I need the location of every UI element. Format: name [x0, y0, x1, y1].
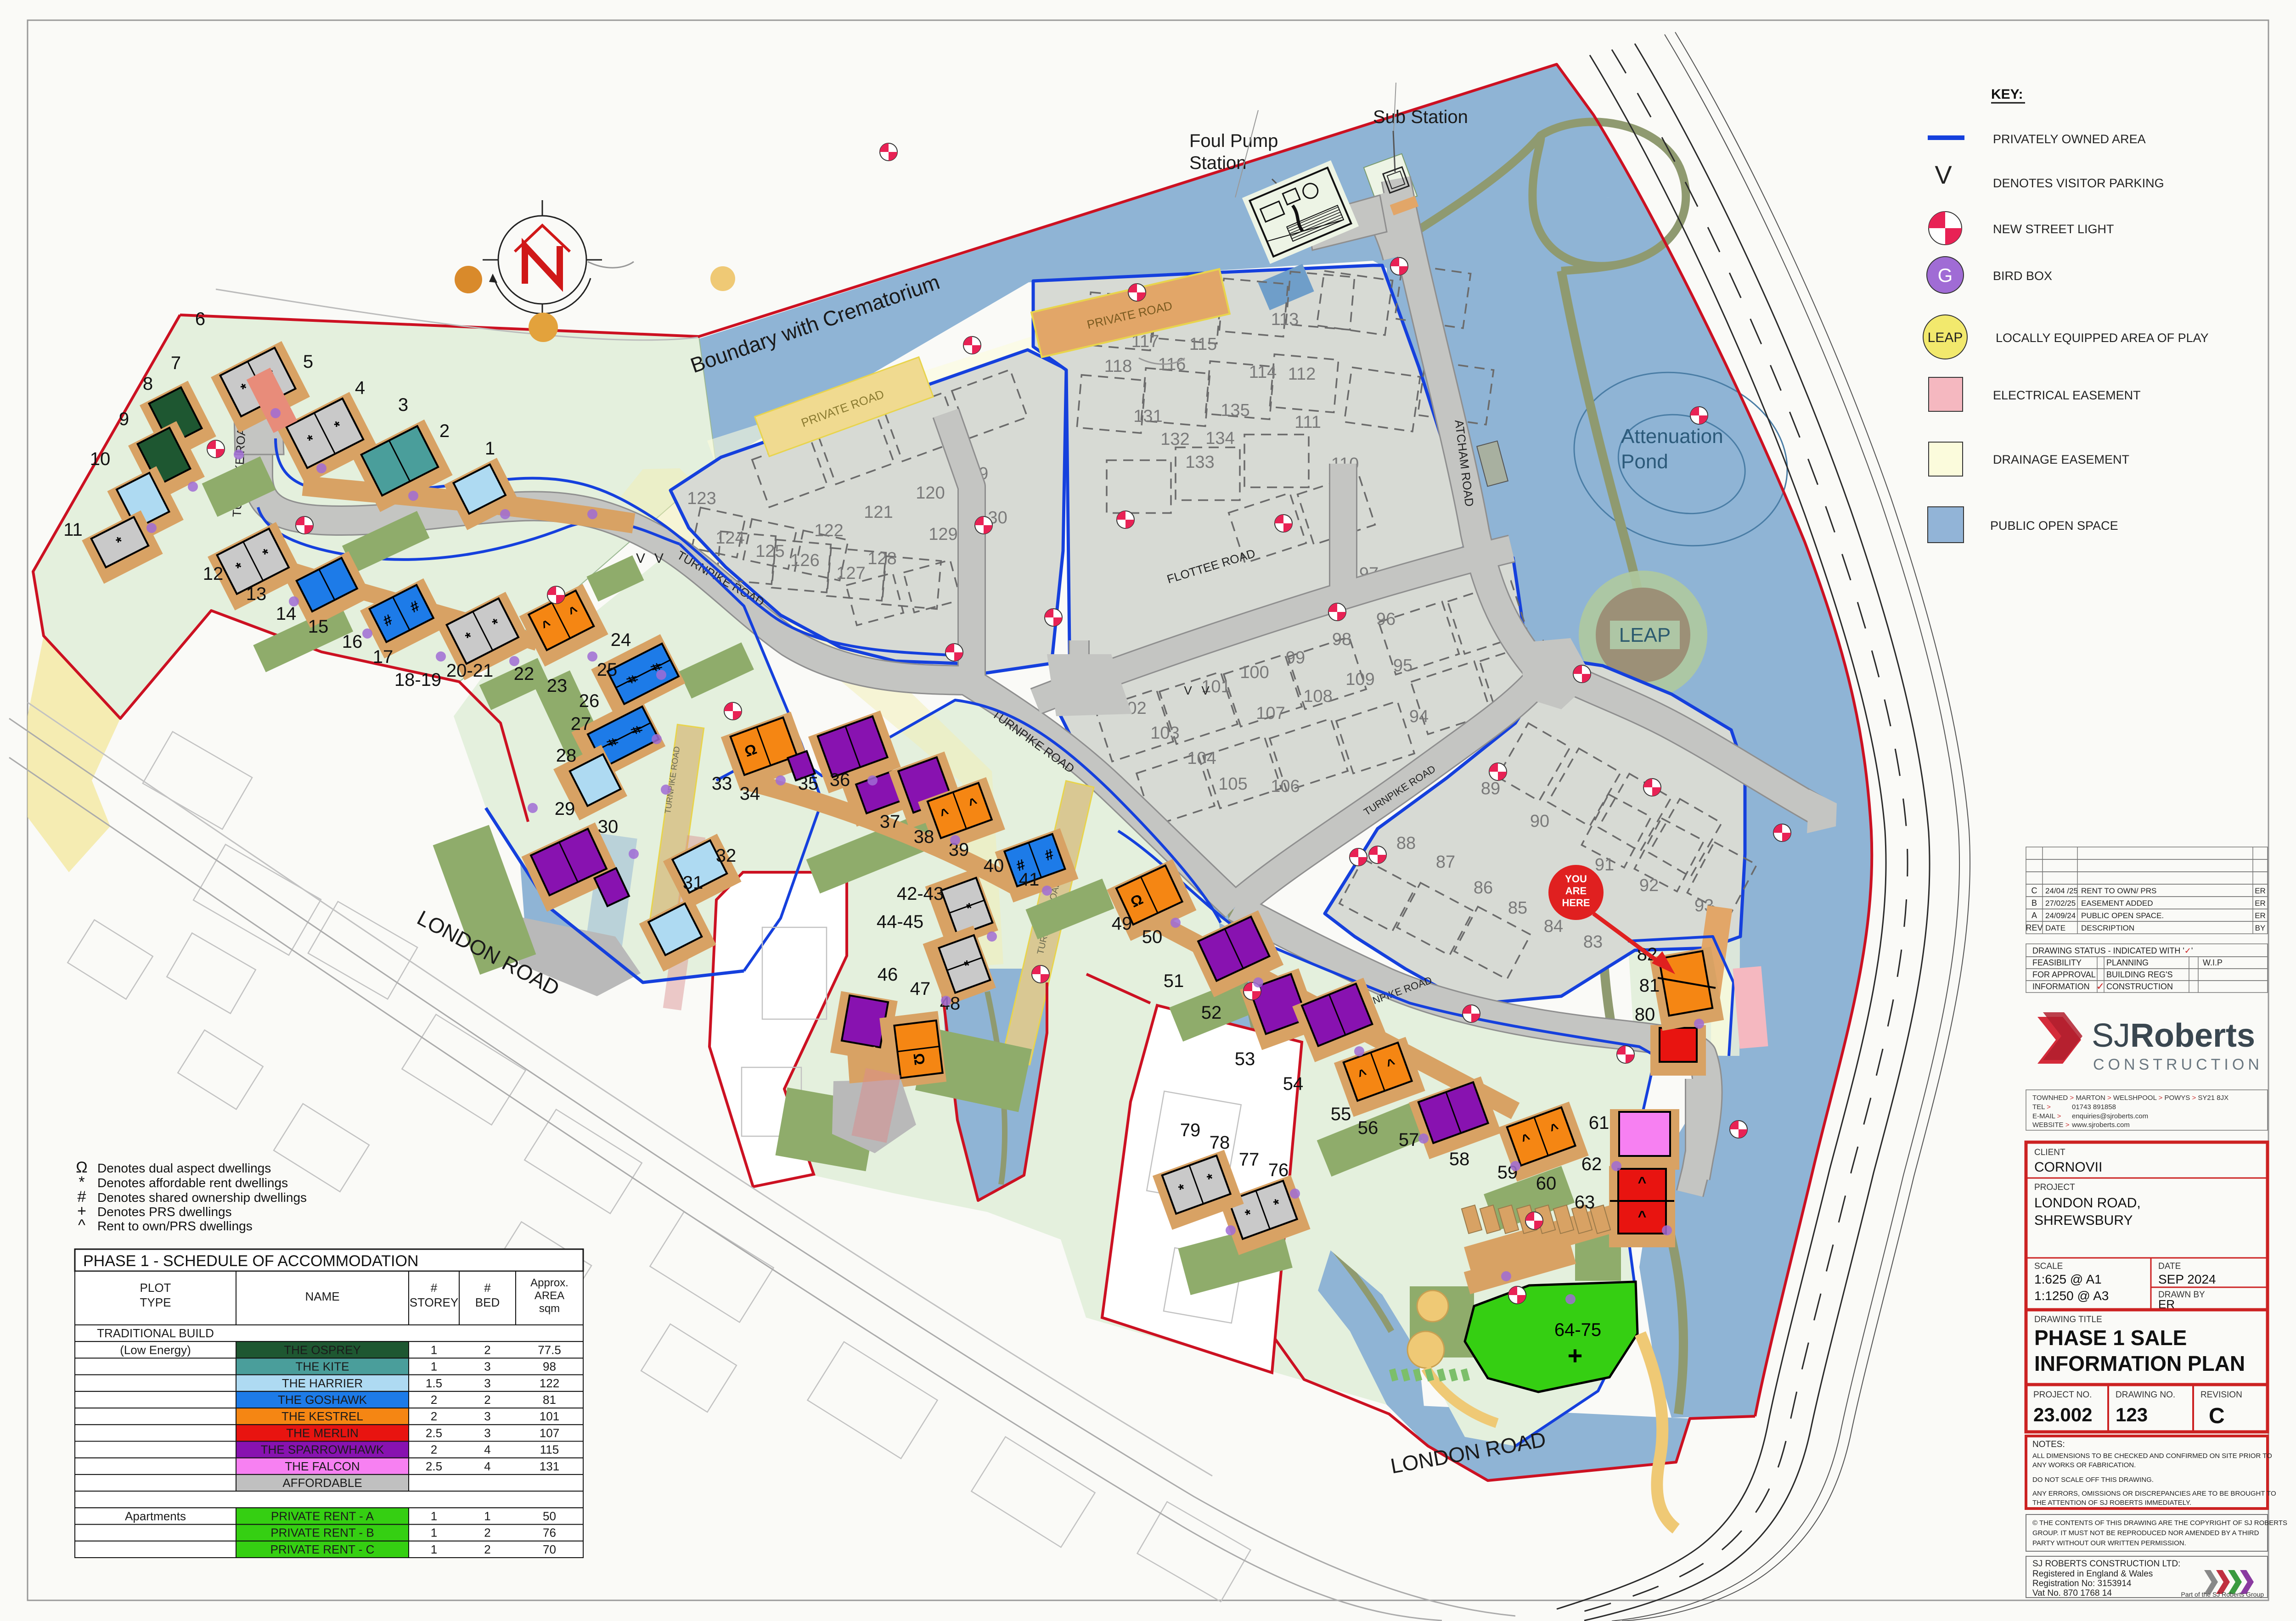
- svg-text:1: 1: [431, 1360, 437, 1374]
- svg-text:3: 3: [484, 1426, 490, 1440]
- svg-text:Registration No: 3153914: Registration No: 3153914: [2032, 1579, 2132, 1588]
- svg-text:107: 107: [1256, 704, 1285, 723]
- svg-text:1: 1: [485, 438, 495, 459]
- svg-text:108: 108: [1303, 687, 1332, 706]
- svg-text:125: 125: [755, 542, 784, 561]
- svg-text:49: 49: [1112, 914, 1132, 934]
- svg-text:Attenuation: Attenuation: [1621, 425, 1723, 448]
- svg-text:DRAWING STATUS - INDICATED WIT: DRAWING STATUS - INDICATED WITH '✓': [2032, 946, 2193, 955]
- svg-text:CLIENT: CLIENT: [2034, 1148, 2065, 1157]
- svg-text:V: V: [1935, 160, 1952, 189]
- svg-text:12: 12: [203, 564, 224, 584]
- svg-text:Rent to own/PRS dwellings: Rent to own/PRS dwellings: [97, 1219, 253, 1233]
- svg-text:THE ATTENTION OF SJ ROBERTS IM: THE ATTENTION OF SJ ROBERTS IMMEDIATELY.: [2032, 1499, 2191, 1507]
- svg-text:KEY:: KEY:: [1991, 87, 2023, 102]
- svg-text:27: 27: [571, 714, 591, 734]
- svg-text:3: 3: [398, 395, 408, 415]
- svg-text:129: 129: [929, 525, 957, 544]
- svg-text:B: B: [2032, 898, 2037, 908]
- svg-text:7: 7: [171, 353, 181, 373]
- svg-text:1: 1: [431, 1526, 437, 1540]
- svg-text:53: 53: [1235, 1049, 1255, 1069]
- svg-text:2: 2: [431, 1443, 437, 1457]
- svg-text:2.5: 2.5: [426, 1459, 442, 1473]
- svg-text:37: 37: [880, 812, 900, 832]
- svg-text:115: 115: [1189, 335, 1217, 354]
- svg-text:98: 98: [543, 1360, 556, 1374]
- svg-text:^: ^: [1638, 1208, 1647, 1224]
- svg-text:C: C: [2209, 1404, 2225, 1428]
- svg-text:95: 95: [1393, 656, 1412, 675]
- svg-text:INFORMATION PLAN: INFORMATION PLAN: [2034, 1352, 2245, 1375]
- svg-text:ARE: ARE: [1565, 885, 1587, 897]
- svg-text:104: 104: [1187, 749, 1216, 768]
- svg-text:91: 91: [1595, 855, 1614, 875]
- svg-text:4: 4: [484, 1443, 490, 1457]
- svg-text:96: 96: [1376, 610, 1396, 629]
- svg-text:LOCALLY EQUIPPED AREA OF PLAY: LOCALLY EQUIPPED AREA OF PLAY: [1996, 331, 2209, 345]
- svg-text:Denotes affordable rent dwelli: Denotes affordable rent dwellings: [97, 1176, 288, 1190]
- svg-text:76: 76: [543, 1526, 556, 1540]
- svg-text:FOR APPROVAL: FOR APPROVAL: [2032, 970, 2096, 979]
- svg-text:1: 1: [431, 1542, 437, 1556]
- svg-text:enquiries@sjroberts.com: enquiries@sjroberts.com: [2072, 1112, 2148, 1120]
- svg-text:83: 83: [1583, 932, 1603, 952]
- svg-text:47: 47: [910, 979, 931, 999]
- svg-text:54: 54: [1283, 1074, 1304, 1094]
- svg-text:2: 2: [431, 1409, 437, 1423]
- svg-text:DRAWING TITLE: DRAWING TITLE: [2034, 1315, 2102, 1324]
- svg-text:ANY WORKS OR FABRICATION.: ANY WORKS OR FABRICATION.: [2032, 1461, 2136, 1469]
- svg-text:4: 4: [355, 378, 365, 398]
- svg-text:90: 90: [1530, 812, 1549, 831]
- svg-text:11: 11: [63, 520, 83, 540]
- svg-text:46: 46: [878, 965, 898, 985]
- svg-text:01743 891858: 01743 891858: [2072, 1103, 2116, 1111]
- svg-text:23.002: 23.002: [2033, 1404, 2092, 1425]
- svg-text:BY: BY: [2255, 924, 2266, 932]
- svg-text:115: 115: [540, 1443, 559, 1457]
- svg-text:5: 5: [303, 352, 313, 372]
- svg-text:REVISION: REVISION: [2200, 1390, 2242, 1400]
- svg-text:DO NOT SCALE OFF THIS DRAWING.: DO NOT SCALE OFF THIS DRAWING.: [2032, 1476, 2154, 1484]
- svg-text:Denotes dual aspect dwellings: Denotes dual aspect dwellings: [97, 1161, 271, 1175]
- svg-text:CONSTRUCTION: CONSTRUCTION: [2093, 1056, 2263, 1073]
- svg-text:34: 34: [740, 784, 760, 804]
- svg-text:81: 81: [1639, 976, 1660, 996]
- svg-text:123: 123: [687, 489, 716, 508]
- svg-text:30: 30: [598, 817, 619, 837]
- svg-text:SJRoberts: SJRoberts: [2092, 1017, 2255, 1054]
- svg-text:132: 132: [1160, 430, 1189, 449]
- svg-text:112: 112: [1288, 365, 1316, 384]
- svg-text:SCALE: SCALE: [2034, 1262, 2063, 1271]
- svg-text:NOTES:: NOTES:: [2032, 1440, 2065, 1449]
- svg-text:100: 100: [1240, 663, 1269, 682]
- svg-text:ER: ER: [2255, 899, 2266, 908]
- svg-text:28: 28: [556, 746, 577, 766]
- svg-text:ER: ER: [2255, 886, 2266, 895]
- svg-text:PLANNING: PLANNING: [2106, 958, 2149, 967]
- svg-text:V: V: [636, 551, 645, 566]
- svg-text:92: 92: [1639, 876, 1659, 895]
- svg-text:9: 9: [119, 409, 129, 429]
- svg-text:ANY ERRORS, OMISSIONS OR DISCR: ANY ERRORS, OMISSIONS OR DISCREPANCIES A…: [2032, 1490, 2276, 1498]
- svg-text:98: 98: [1332, 630, 1351, 649]
- svg-text:Part of the SJ Roberts Group: Part of the SJ Roberts Group: [2181, 1591, 2264, 1598]
- svg-text:SHREWSBURY: SHREWSBURY: [2034, 1213, 2133, 1228]
- svg-text:133: 133: [1185, 453, 1214, 472]
- svg-text:TYPE: TYPE: [140, 1296, 171, 1309]
- svg-text:22: 22: [514, 664, 535, 684]
- svg-text:94: 94: [1409, 707, 1429, 726]
- svg-text:109: 109: [1345, 670, 1374, 689]
- svg-text:50: 50: [1142, 927, 1163, 947]
- svg-text:CONSTRUCTION: CONSTRUCTION: [2106, 982, 2173, 991]
- svg-text:127: 127: [836, 564, 865, 583]
- svg-text:LEAP: LEAP: [1928, 330, 1963, 345]
- svg-text:NEW STREET LIGHT: NEW STREET LIGHT: [1993, 222, 2114, 236]
- svg-text:24: 24: [611, 630, 631, 650]
- svg-text:20-21: 20-21: [446, 661, 493, 681]
- svg-text:FEASIBILITY: FEASIBILITY: [2032, 958, 2082, 967]
- svg-text:Apartments: Apartments: [125, 1509, 186, 1523]
- svg-text:AFFORDABLE: AFFORDABLE: [282, 1476, 362, 1490]
- svg-text:V: V: [1201, 684, 1210, 697]
- svg-text:SEP 2024: SEP 2024: [2158, 1272, 2216, 1286]
- svg-text:79: 79: [1180, 1120, 1201, 1140]
- svg-text:122: 122: [540, 1376, 559, 1390]
- svg-text:77.5: 77.5: [538, 1343, 561, 1357]
- svg-text:44-45: 44-45: [877, 912, 923, 932]
- svg-text:TRADITIONAL BUILD: TRADITIONAL BUILD: [97, 1326, 214, 1340]
- svg-text:A: A: [2032, 911, 2037, 920]
- svg-text:113: 113: [1271, 310, 1299, 329]
- svg-text:131: 131: [540, 1459, 559, 1473]
- svg-text:52: 52: [1201, 1003, 1222, 1023]
- svg-text:105: 105: [1218, 774, 1247, 794]
- svg-text:RENT TO OWN/ PRS: RENT TO OWN/ PRS: [2081, 886, 2156, 895]
- svg-text:15: 15: [308, 617, 329, 637]
- svg-text:62: 62: [1581, 1154, 1602, 1174]
- svg-text:THE SPARROWHAWK: THE SPARROWHAWK: [261, 1443, 384, 1457]
- svg-text:85: 85: [1508, 898, 1527, 918]
- svg-text:120: 120: [916, 483, 945, 503]
- svg-text:1: 1: [431, 1509, 437, 1523]
- svg-text:87: 87: [1436, 853, 1455, 872]
- svg-text:1: 1: [431, 1343, 437, 1357]
- svg-text:77: 77: [1239, 1150, 1260, 1170]
- svg-text:BIRD BOX: BIRD BOX: [1993, 269, 2052, 283]
- svg-text:(Low Energy): (Low Energy): [120, 1343, 191, 1357]
- svg-text:42-43: 42-43: [897, 884, 944, 904]
- svg-text:3: 3: [484, 1360, 490, 1374]
- svg-text:18-19: 18-19: [394, 670, 441, 690]
- svg-text:PHASE 1 - SCHEDULE OF ACCOMMOD: PHASE 1 - SCHEDULE OF ACCOMMODATION: [83, 1252, 418, 1270]
- svg-text:60: 60: [1536, 1173, 1557, 1194]
- svg-text:BUILDING REG'S: BUILDING REG'S: [2106, 970, 2172, 979]
- svg-text:32: 32: [716, 846, 737, 866]
- svg-text:13: 13: [246, 584, 267, 604]
- svg-text:CORNOVII: CORNOVII: [2034, 1160, 2102, 1175]
- svg-text:1:625 @ A1: 1:625 @ A1: [2034, 1272, 2102, 1286]
- svg-text:www.sjroberts.com: www.sjroberts.com: [2071, 1121, 2130, 1129]
- svg-text:PROJECT: PROJECT: [2034, 1183, 2075, 1192]
- svg-text:31: 31: [683, 873, 703, 893]
- svg-text:131: 131: [1133, 407, 1162, 426]
- svg-text:LONDON ROAD,: LONDON ROAD,: [2034, 1195, 2141, 1211]
- svg-text:51: 51: [1164, 971, 1184, 991]
- svg-text:78: 78: [1210, 1133, 1230, 1153]
- svg-text:14: 14: [276, 604, 297, 624]
- svg-text:#: #: [484, 1281, 491, 1295]
- svg-text:PRIVATE RENT - B: PRIVATE RENT - B: [270, 1526, 374, 1540]
- svg-text:#: #: [431, 1281, 438, 1295]
- svg-text:24/04 /25: 24/04 /25: [2045, 886, 2078, 895]
- svg-text:ALL DIMENSIONS TO BE CHECKED A: ALL DIMENSIONS TO BE CHECKED AND CONFIRM…: [2032, 1452, 2272, 1460]
- svg-text:118: 118: [1104, 357, 1132, 376]
- svg-text:64-75: 64-75: [1554, 1320, 1601, 1340]
- svg-text:111: 111: [1294, 413, 1321, 432]
- svg-text:TEL >: TEL >: [2032, 1103, 2051, 1111]
- svg-text:6: 6: [195, 309, 205, 329]
- svg-text:PLOT: PLOT: [140, 1281, 171, 1295]
- svg-text:1: 1: [484, 1509, 490, 1523]
- svg-text:Approx.: Approx.: [530, 1277, 568, 1289]
- svg-text:E-MAIL >: E-MAIL >: [2032, 1112, 2061, 1120]
- svg-text:76: 76: [1268, 1160, 1289, 1180]
- svg-text:2: 2: [439, 421, 450, 441]
- svg-text:DRAINAGE EASEMENT: DRAINAGE EASEMENT: [1993, 453, 2129, 466]
- svg-text:35: 35: [798, 774, 819, 794]
- svg-text:2: 2: [484, 1542, 490, 1556]
- svg-text:17: 17: [373, 647, 394, 667]
- svg-text:121: 121: [864, 503, 893, 522]
- svg-text:ER: ER: [2255, 911, 2266, 920]
- svg-text:88: 88: [1396, 834, 1416, 853]
- svg-text:23: 23: [547, 676, 568, 696]
- svg-text:99: 99: [1286, 648, 1305, 667]
- svg-text:36: 36: [830, 770, 850, 790]
- svg-text:103: 103: [1150, 724, 1179, 743]
- svg-text:ELECTRICAL EASEMENT: ELECTRICAL EASEMENT: [1993, 388, 2141, 402]
- svg-text:THE OSPREY: THE OSPREY: [284, 1343, 361, 1357]
- svg-text:2.5: 2.5: [426, 1426, 442, 1440]
- svg-text:PROJECT NO.: PROJECT NO.: [2033, 1390, 2092, 1400]
- svg-text:Pond: Pond: [1621, 450, 1668, 473]
- svg-text:38: 38: [914, 827, 934, 847]
- svg-text:AREA: AREA: [535, 1290, 564, 1302]
- svg-text:Denotes PRS dwellings: Denotes PRS dwellings: [97, 1205, 232, 1219]
- svg-text:1.5: 1.5: [426, 1376, 442, 1390]
- svg-text:PARTY WITHOUT OUR WRITTEN PERM: PARTY WITHOUT OUR WRITTEN PERMISSION.: [2032, 1539, 2186, 1547]
- svg-text:Ω: Ω: [910, 1052, 928, 1066]
- svg-text:YOU: YOU: [1565, 873, 1587, 885]
- svg-text:V: V: [1184, 684, 1192, 697]
- svg-text:EASEMENT ADDED: EASEMENT ADDED: [2081, 899, 2153, 908]
- svg-text:86: 86: [1474, 878, 1493, 897]
- svg-text:107: 107: [540, 1426, 559, 1440]
- svg-text:2: 2: [484, 1526, 490, 1540]
- svg-text:8: 8: [143, 374, 153, 394]
- svg-text:THE GOSHAWK: THE GOSHAWK: [278, 1393, 367, 1407]
- svg-text:135: 135: [1221, 401, 1249, 420]
- svg-text:55: 55: [1331, 1104, 1351, 1124]
- svg-text:REV: REV: [2026, 923, 2043, 932]
- svg-text:DRAWING NO.: DRAWING NO.: [2116, 1390, 2175, 1400]
- svg-text:STOREY: STOREY: [410, 1296, 458, 1309]
- svg-text:W.I.P: W.I.P: [2203, 958, 2223, 967]
- svg-text:123: 123: [2116, 1404, 2148, 1425]
- svg-text:HERE: HERE: [1562, 897, 1590, 909]
- svg-text:3: 3: [484, 1409, 490, 1423]
- svg-text:3: 3: [484, 1376, 490, 1390]
- svg-text:DENOTES VISITOR PARKING: DENOTES VISITOR PARKING: [1993, 176, 2164, 190]
- svg-text:41: 41: [1019, 869, 1040, 890]
- svg-text:✓: ✓: [2096, 981, 2105, 992]
- svg-text:INFORMATION: INFORMATION: [2032, 982, 2090, 991]
- svg-text:Denotes shared ownership dwell: Denotes shared ownership dwellings: [97, 1190, 307, 1205]
- svg-text:80: 80: [1635, 1004, 1655, 1025]
- svg-text:G: G: [1938, 264, 1953, 286]
- svg-text:THE KESTREL: THE KESTREL: [281, 1409, 363, 1423]
- svg-text:29: 29: [555, 799, 575, 819]
- svg-text:GROUP. IT MUST NOT BE REPRODUC: GROUP. IT MUST NOT BE REPRODUCED NOR AME…: [2032, 1529, 2259, 1537]
- svg-text:Vat No. 870 1768 14: Vat No. 870 1768 14: [2032, 1588, 2112, 1598]
- svg-text:© THE CONTENTS OF THIS DRAWING: © THE CONTENTS OF THIS DRAWING ARE THE C…: [2032, 1519, 2287, 1527]
- svg-text:26: 26: [579, 691, 600, 711]
- svg-text:63: 63: [1575, 1192, 1595, 1212]
- svg-text:PRIVATELY OWNED AREA: PRIVATELY OWNED AREA: [1993, 132, 2146, 146]
- svg-text:Foul Pump: Foul Pump: [1189, 131, 1278, 151]
- svg-text:122: 122: [814, 521, 843, 540]
- svg-text:106: 106: [1271, 777, 1300, 796]
- svg-text:58: 58: [1449, 1149, 1470, 1169]
- svg-text:WEBSITE >: WEBSITE >: [2032, 1121, 2070, 1129]
- svg-text:THE FALCON: THE FALCON: [285, 1459, 360, 1473]
- svg-text:Sub Station: Sub Station: [1373, 107, 1468, 127]
- svg-text:84: 84: [1544, 917, 1563, 936]
- svg-text:16: 16: [342, 632, 363, 652]
- svg-text:25: 25: [597, 660, 618, 680]
- svg-text:Station: Station: [1189, 153, 1247, 173]
- svg-text:TOWNHED > MARTON > WELSHPOOL >: TOWNHED > MARTON > WELSHPOOL > POWYS > S…: [2032, 1094, 2228, 1102]
- svg-text:10: 10: [90, 449, 111, 469]
- svg-text:27/02/25: 27/02/25: [2045, 899, 2076, 908]
- svg-text:24/09/24: 24/09/24: [2045, 911, 2076, 920]
- svg-text:DATE: DATE: [2158, 1262, 2181, 1271]
- svg-text:LEAP: LEAP: [1619, 624, 1671, 646]
- svg-text:PUBLIC OPEN SPACE: PUBLIC OPEN SPACE: [1990, 519, 2118, 533]
- svg-text:Registered in England & Wales: Registered in England & Wales: [2032, 1569, 2153, 1579]
- svg-text:BED: BED: [475, 1296, 500, 1309]
- svg-text:89: 89: [1481, 779, 1500, 798]
- svg-text:2: 2: [484, 1393, 490, 1407]
- svg-text:THE MERLIN: THE MERLIN: [286, 1426, 358, 1440]
- svg-text:61: 61: [1589, 1113, 1609, 1133]
- svg-text:56: 56: [1358, 1118, 1379, 1138]
- svg-text:124: 124: [715, 528, 744, 548]
- svg-text:^: ^: [1638, 1174, 1647, 1190]
- svg-text:4: 4: [484, 1459, 490, 1473]
- svg-text:2: 2: [431, 1393, 437, 1407]
- svg-text:50: 50: [543, 1509, 556, 1523]
- svg-text:^: ^: [78, 1217, 85, 1234]
- svg-text:+: +: [1568, 1341, 1583, 1370]
- svg-text:128: 128: [867, 549, 896, 568]
- svg-text:70: 70: [543, 1542, 556, 1556]
- svg-text:PRIVATE RENT - A: PRIVATE RENT - A: [271, 1509, 374, 1523]
- svg-text:PHASE 1 SALE: PHASE 1 SALE: [2034, 1326, 2187, 1350]
- svg-text:114: 114: [1249, 363, 1277, 382]
- svg-text:2: 2: [484, 1343, 490, 1357]
- svg-text:40: 40: [984, 856, 1004, 876]
- svg-text:C: C: [2032, 886, 2037, 895]
- svg-text:126: 126: [790, 551, 819, 570]
- svg-text:33: 33: [712, 774, 732, 794]
- svg-text:57: 57: [1399, 1130, 1419, 1150]
- svg-text:DESCRIPTION: DESCRIPTION: [2081, 924, 2134, 932]
- svg-text:PUBLIC OPEN SPACE.: PUBLIC OPEN SPACE.: [2081, 911, 2164, 920]
- svg-text:PRIVATE RENT - C: PRIVATE RENT - C: [270, 1542, 375, 1556]
- svg-text:DATE: DATE: [2045, 924, 2065, 932]
- svg-text:V: V: [654, 551, 664, 566]
- svg-text:101: 101: [540, 1409, 559, 1423]
- svg-text:NAME: NAME: [305, 1290, 339, 1303]
- svg-text:THE KITE: THE KITE: [295, 1360, 349, 1374]
- svg-text:1:1250 @ A3: 1:1250 @ A3: [2034, 1289, 2109, 1303]
- svg-text:THE HARRIER: THE HARRIER: [282, 1376, 363, 1390]
- svg-text:81: 81: [543, 1393, 556, 1407]
- svg-text:SJ ROBERTS CONSTRUCTION LTD:: SJ ROBERTS CONSTRUCTION LTD:: [2032, 1559, 2180, 1569]
- svg-text:134: 134: [1205, 429, 1234, 448]
- svg-text:sqm: sqm: [539, 1302, 560, 1315]
